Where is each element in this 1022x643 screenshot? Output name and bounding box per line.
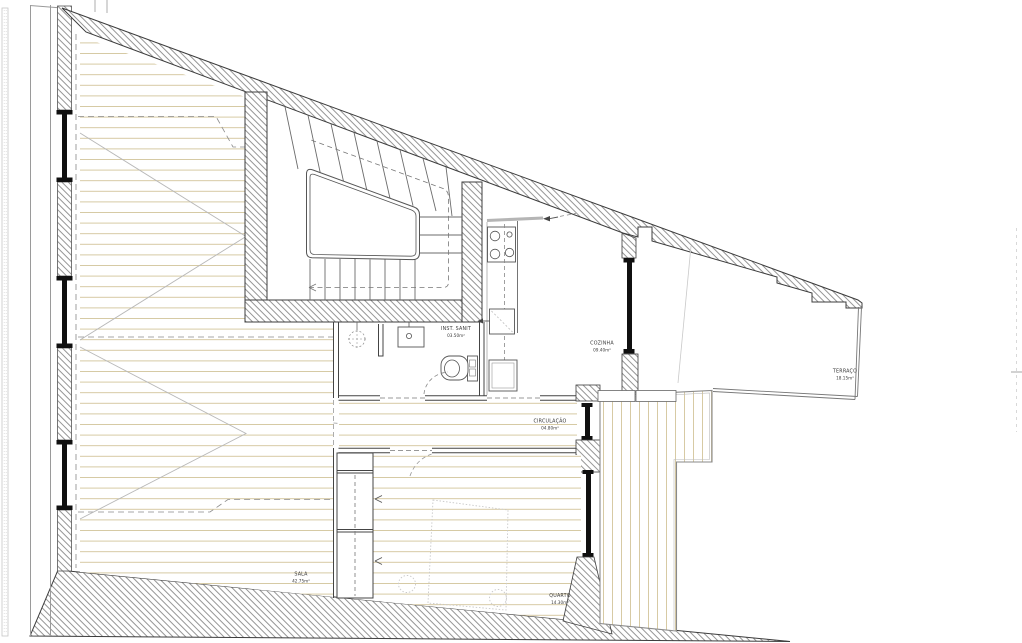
terrace-step-2 <box>636 391 676 402</box>
left-wall-window-1 <box>57 110 73 182</box>
room-label-circulacao: CIRCULAÇÃO <box>533 418 566 425</box>
sheet-edge-marks <box>1011 228 1022 432</box>
stair-lower-flight <box>310 259 415 300</box>
room-label-inst-sanit: INST. SANIT <box>441 326 471 332</box>
fridge <box>489 360 517 391</box>
stove <box>488 227 516 262</box>
room-area-terraco: 18.15m² <box>836 376 854 381</box>
terrace-decking <box>598 391 712 632</box>
left-wall-window-3 <box>57 440 73 510</box>
room-area-cozinha: 09.40m² <box>593 348 611 353</box>
room-area-inst-sanit: 03.50m² <box>447 333 465 338</box>
water-heater <box>348 322 366 348</box>
sink-unit <box>478 309 515 334</box>
vent-arrow <box>543 213 576 221</box>
room-label-cozinha: COZINHA <box>590 341 614 347</box>
room-label-sala: SALA <box>294 572 308 578</box>
room-inst-sanit: INST. SANIT 03.50m² <box>334 322 485 398</box>
room-cozinha: COZINHA 09.40m² <box>478 213 639 395</box>
left-wall-window-2 <box>57 276 73 348</box>
toilet <box>441 356 478 381</box>
left-boundary-strip <box>2 8 8 636</box>
room-label-quarto: QUARTO <box>549 593 570 599</box>
corridor-top-wall <box>339 396 578 400</box>
kitchen-window <box>622 233 638 392</box>
room-label-terraco: TERRAÇO <box>832 369 857 375</box>
corridor-bottom-wall <box>339 448 578 452</box>
floor-plan-sheet: SALA 42.75m² <box>0 0 1022 643</box>
stair-void-handrail <box>307 169 420 259</box>
floor-plan-drawing: SALA 42.75m² <box>0 0 1022 643</box>
room-area-quarto: 14.30m² <box>551 600 569 605</box>
stair-side-treads <box>420 217 462 253</box>
left-exterior-wall <box>30 5 76 636</box>
terrace-step-1 <box>598 391 635 402</box>
room-area-sala: 42.75m² <box>292 579 310 584</box>
room-area-circulacao: 04.80m² <box>541 426 559 431</box>
bathroom-sink <box>398 322 424 347</box>
